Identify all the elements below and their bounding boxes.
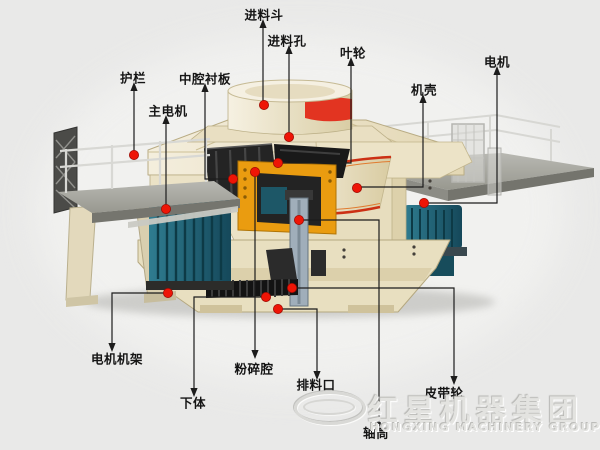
callout-dot-crushing-chamber bbox=[250, 167, 259, 176]
watermark: 红星机器集团 HONGXING MACHINERY GROUP bbox=[288, 384, 596, 444]
watermark-logo-icon bbox=[294, 391, 366, 425]
diagram-stage: 进料斗进料孔叶轮机壳电机护栏中腔衬板主电机电机机架下体粉碎腔排料口轴筒皮带轮 红… bbox=[0, 0, 600, 450]
callout-line-motor-frame bbox=[112, 293, 166, 344]
callout-dot-motor-frame bbox=[163, 288, 172, 297]
callout-dot-lower-body bbox=[261, 292, 270, 301]
callout-line-casing bbox=[359, 102, 423, 187]
callout-arrow-casing bbox=[419, 94, 426, 103]
callout-dot-casing bbox=[352, 183, 361, 192]
watermark-english-text: HONGXING MACHINERY GROUP bbox=[370, 421, 600, 434]
callout-dot-middle-cavity-liner bbox=[228, 174, 237, 183]
callout-line-belt-pulley bbox=[294, 288, 454, 377]
callout-line-lower-body bbox=[194, 297, 264, 389]
callout-dot-impeller bbox=[273, 158, 282, 167]
callout-arrow-discharge-port bbox=[313, 371, 320, 380]
callout-arrow-feed-hopper bbox=[259, 19, 266, 28]
callout-arrow-motor-frame bbox=[108, 343, 115, 352]
callout-arrow-impeller bbox=[347, 57, 354, 66]
callout-arrow-main-motor bbox=[162, 115, 169, 124]
callout-dot-belt-pulley bbox=[287, 283, 296, 292]
callout-arrow-motor bbox=[493, 66, 500, 75]
callout-dot-shaft-cylinder bbox=[294, 215, 303, 224]
callout-dot-discharge-port bbox=[273, 304, 282, 313]
callout-arrow-lower-body bbox=[190, 388, 197, 397]
callout-arrow-feed-inlet bbox=[285, 45, 292, 54]
callout-dot-motor bbox=[419, 198, 428, 207]
callout-dot-guard-rail bbox=[129, 150, 138, 159]
callout-line-motor bbox=[426, 74, 497, 203]
callout-line-discharge-port bbox=[280, 309, 317, 372]
callout-arrow-middle-cavity-liner bbox=[201, 83, 208, 92]
callout-arrow-crushing-chamber bbox=[251, 350, 258, 359]
callout-dot-feed-inlet bbox=[284, 132, 293, 141]
callout-dot-feed-hopper bbox=[259, 100, 268, 109]
callout-layer bbox=[0, 0, 600, 450]
callout-arrow-guard-rail bbox=[130, 82, 137, 91]
callout-dot-main-motor bbox=[161, 204, 170, 213]
callout-line-middle-cavity-liner bbox=[205, 91, 231, 179]
